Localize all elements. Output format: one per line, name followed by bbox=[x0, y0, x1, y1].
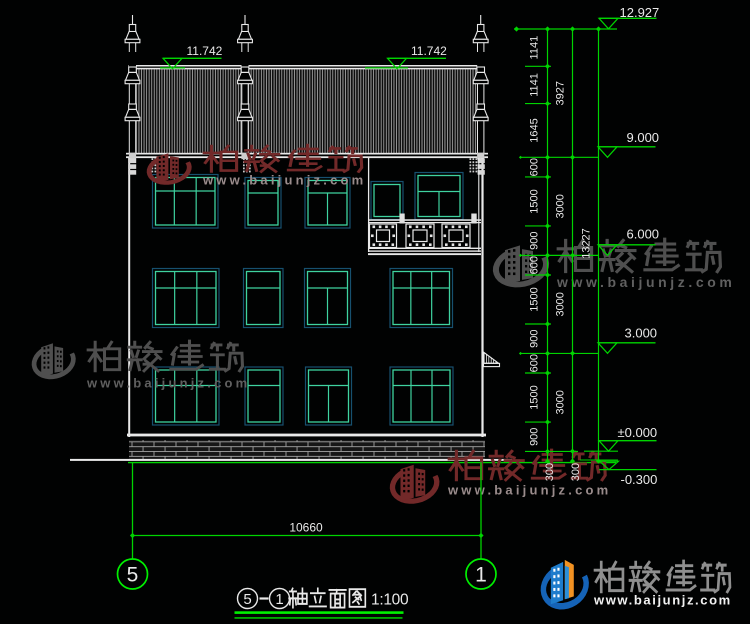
svg-text:1500: 1500 bbox=[529, 287, 541, 311]
svg-text:1141: 1141 bbox=[529, 36, 541, 60]
svg-text:5: 5 bbox=[243, 591, 251, 608]
svg-text:13227: 13227 bbox=[581, 228, 593, 259]
svg-text:12.927: 12.927 bbox=[620, 5, 660, 20]
svg-text:1:100: 1:100 bbox=[371, 592, 409, 609]
svg-text:300: 300 bbox=[544, 463, 556, 481]
svg-text:1141: 1141 bbox=[529, 73, 541, 97]
svg-text:900: 900 bbox=[529, 428, 541, 446]
svg-text:www.baijunjz.com: www.baijunjz.com bbox=[593, 593, 732, 608]
svg-text:600: 600 bbox=[529, 256, 541, 274]
svg-text:300: 300 bbox=[570, 463, 582, 481]
svg-text:5: 5 bbox=[127, 564, 139, 587]
svg-text:3000: 3000 bbox=[555, 292, 567, 316]
svg-text:900: 900 bbox=[529, 330, 541, 348]
svg-text:1: 1 bbox=[275, 591, 283, 608]
svg-text:9.000: 9.000 bbox=[627, 130, 660, 145]
svg-text:6.000: 6.000 bbox=[627, 227, 660, 242]
svg-text:3.000: 3.000 bbox=[625, 326, 658, 341]
svg-text:1645: 1645 bbox=[529, 118, 541, 142]
svg-text:600: 600 bbox=[529, 354, 541, 372]
svg-text:±0.000: ±0.000 bbox=[618, 425, 658, 440]
svg-text:1: 1 bbox=[475, 564, 487, 587]
svg-text:www.baijunjz.com: www.baijunjz.com bbox=[202, 173, 366, 188]
svg-text:-0.300: -0.300 bbox=[621, 472, 658, 487]
svg-text:www.baijunjz.com: www.baijunjz.com bbox=[447, 483, 611, 498]
svg-text:10660: 10660 bbox=[289, 521, 323, 535]
svg-text:11.742: 11.742 bbox=[411, 44, 447, 58]
svg-text:3000: 3000 bbox=[555, 390, 567, 414]
svg-text:1500: 1500 bbox=[529, 385, 541, 409]
svg-text:11.742: 11.742 bbox=[187, 44, 223, 58]
svg-text:3000: 3000 bbox=[555, 194, 567, 218]
svg-text:1500: 1500 bbox=[529, 189, 541, 213]
svg-text:www.baijunjz.com: www.baijunjz.com bbox=[556, 274, 735, 290]
svg-text:600: 600 bbox=[529, 158, 541, 176]
svg-text:www.baijunjz.com: www.baijunjz.com bbox=[86, 376, 250, 391]
svg-text:900: 900 bbox=[529, 231, 541, 249]
svg-text:3927: 3927 bbox=[555, 81, 567, 105]
